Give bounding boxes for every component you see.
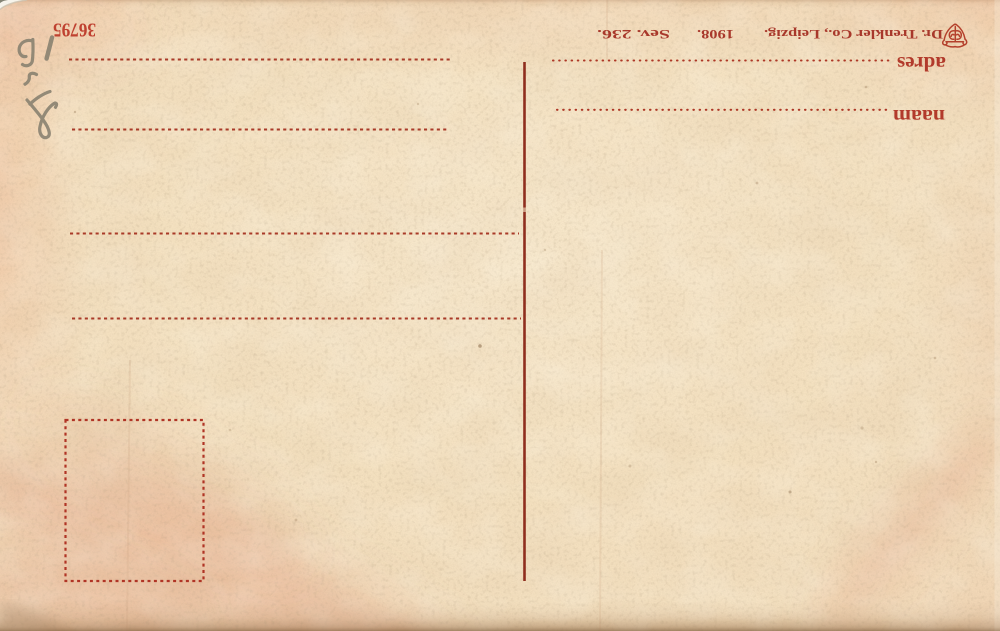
svg-text:Sev. 236.: Sev. 236. [597, 27, 670, 42]
svg-text:1908.: 1908. [697, 27, 734, 42]
svg-text:adres: adres [897, 52, 946, 76]
svg-text:Dr. Trenkler Co., Leipzig.: Dr. Trenkler Co., Leipzig. [764, 27, 943, 42]
svg-text:naam: naam [892, 105, 945, 129]
svg-text:36795: 36795 [53, 18, 96, 40]
